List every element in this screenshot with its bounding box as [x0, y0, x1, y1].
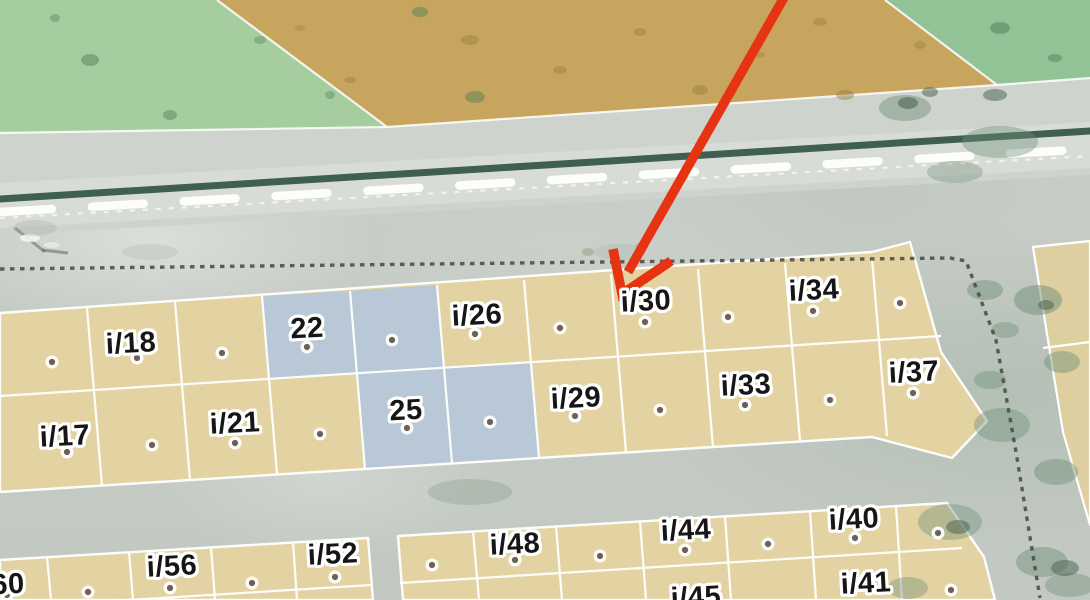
terrain-speckle-2 — [634, 28, 646, 36]
parcel-marker-26 — [332, 574, 338, 580]
scrub-blob-8 — [974, 371, 1006, 389]
plot-label-25: 25 — [389, 394, 424, 429]
plot-label-i-41: i/41 — [840, 566, 892, 600]
parcel-marker-18 — [657, 407, 663, 413]
plot-label-i-21: i/21 — [209, 406, 261, 442]
terrain-speckle-9 — [295, 25, 305, 31]
scrub-blob-9 — [1014, 285, 1062, 315]
parcel-marker-13 — [232, 440, 238, 446]
scrub-blob-7 — [991, 322, 1019, 338]
terrain-speckle-7 — [914, 41, 926, 49]
terrain-speckle-6 — [836, 90, 854, 100]
dirt-track-1 — [42, 250, 68, 253]
terrain-speckle-20 — [44, 242, 60, 248]
scrub-blob-19 — [1051, 560, 1079, 576]
parcel-marker-33 — [935, 530, 941, 536]
scrub-blob-11 — [974, 408, 1030, 442]
terrain-speckle-13 — [412, 7, 428, 17]
plot-label-i-34: i/34 — [788, 273, 840, 309]
scrub-blob-23 — [13, 220, 57, 236]
scrub-blob-4 — [898, 97, 918, 109]
terrain-speckle-11 — [163, 110, 177, 120]
plot-label-i-29: i/29 — [550, 381, 602, 417]
parcel-marker-24 — [167, 585, 173, 591]
terrain-speckle-1 — [553, 66, 567, 74]
terrain-speckle-14 — [325, 91, 335, 99]
parcel-marker-23 — [85, 589, 91, 595]
terrain-speckle-8 — [344, 77, 356, 83]
scrub-blob-20 — [428, 479, 512, 505]
terrain-speckle-15 — [465, 91, 485, 103]
terrain-speckle-0 — [461, 35, 479, 45]
parcel-marker-19 — [742, 402, 748, 408]
plot-label-i-45: i/45 — [670, 580, 722, 600]
parcel-marker-34 — [948, 587, 954, 593]
terrain-speckle-17 — [990, 22, 1010, 34]
parcel-marker-9 — [810, 308, 816, 314]
scrub-blob-12 — [1034, 459, 1078, 485]
parcel-marker-20 — [827, 397, 833, 403]
parcel-marker-4 — [389, 337, 395, 343]
plot-label-i-56: i/56 — [146, 549, 198, 585]
scrub-blob-5 — [983, 89, 1007, 101]
parcel-marker-21 — [910, 390, 916, 396]
plot-label-i-52: i/52 — [307, 537, 359, 573]
terrain-speckle-5 — [813, 18, 827, 26]
terrain-speckle-3 — [692, 85, 708, 95]
terrain-speckle-21 — [582, 248, 594, 256]
parcel-marker-0 — [49, 359, 55, 365]
parcel-marker-30 — [682, 547, 688, 553]
terrain-speckle-18 — [1048, 54, 1062, 62]
parcel-marker-12 — [149, 442, 155, 448]
parcel-marker-14 — [317, 431, 323, 437]
parcel-marker-25 — [249, 580, 255, 586]
block-upper-blue-cell-1 — [350, 285, 444, 373]
plot-label-i-18: i/18 — [105, 326, 157, 362]
parcel-marker-8 — [725, 314, 731, 320]
scrub-blob-15 — [888, 577, 928, 599]
scrub-blob-17 — [1038, 300, 1054, 310]
map-viewport: i/1822i/26i/30i/34i/17i/2125i/29i/33i/37… — [0, 0, 1090, 600]
plot-label-i-33: i/33 — [720, 368, 772, 404]
plot-label-i-17: i/17 — [39, 419, 91, 455]
parcel-marker-7 — [642, 319, 648, 325]
block-upper-blue-cell-3 — [444, 362, 539, 463]
scrub-blob-2 — [927, 161, 983, 183]
parcel-marker-10 — [897, 300, 903, 306]
scrub-blob-10 — [1044, 351, 1080, 373]
terrain-speckle-16 — [50, 14, 60, 22]
parcel-marker-27 — [429, 562, 435, 568]
plot-label-i-30: i/30 — [620, 284, 672, 320]
terrain-speckle-10 — [81, 54, 99, 66]
parcel-marker-2 — [219, 350, 225, 356]
scrub-blob-16 — [1045, 573, 1090, 597]
plot-label-i-40: i/40 — [828, 502, 880, 538]
scrub-blob-6 — [967, 280, 1003, 300]
plot-label-i-44: i/44 — [660, 513, 712, 549]
satellite-map-svg — [0, 0, 1090, 600]
parcel-marker-6 — [557, 325, 563, 331]
scrub-blob-1 — [962, 126, 1038, 158]
scrub-blob-21 — [122, 244, 178, 260]
scrub-blob-18 — [946, 520, 970, 534]
plot-label-i-37: i/37 — [888, 355, 940, 391]
plot-label-22: 22 — [290, 312, 325, 347]
terrain-speckle-12 — [254, 36, 266, 44]
parcel-marker-31 — [765, 541, 771, 547]
plot-label-i-26: i/26 — [451, 298, 503, 334]
scrub-blob-3 — [922, 87, 938, 97]
parcel-marker-16 — [487, 419, 493, 425]
plot-label-i-48: i/48 — [489, 527, 541, 563]
plot-label-60: 60 — [0, 568, 25, 600]
parcel-marker-29 — [597, 553, 603, 559]
